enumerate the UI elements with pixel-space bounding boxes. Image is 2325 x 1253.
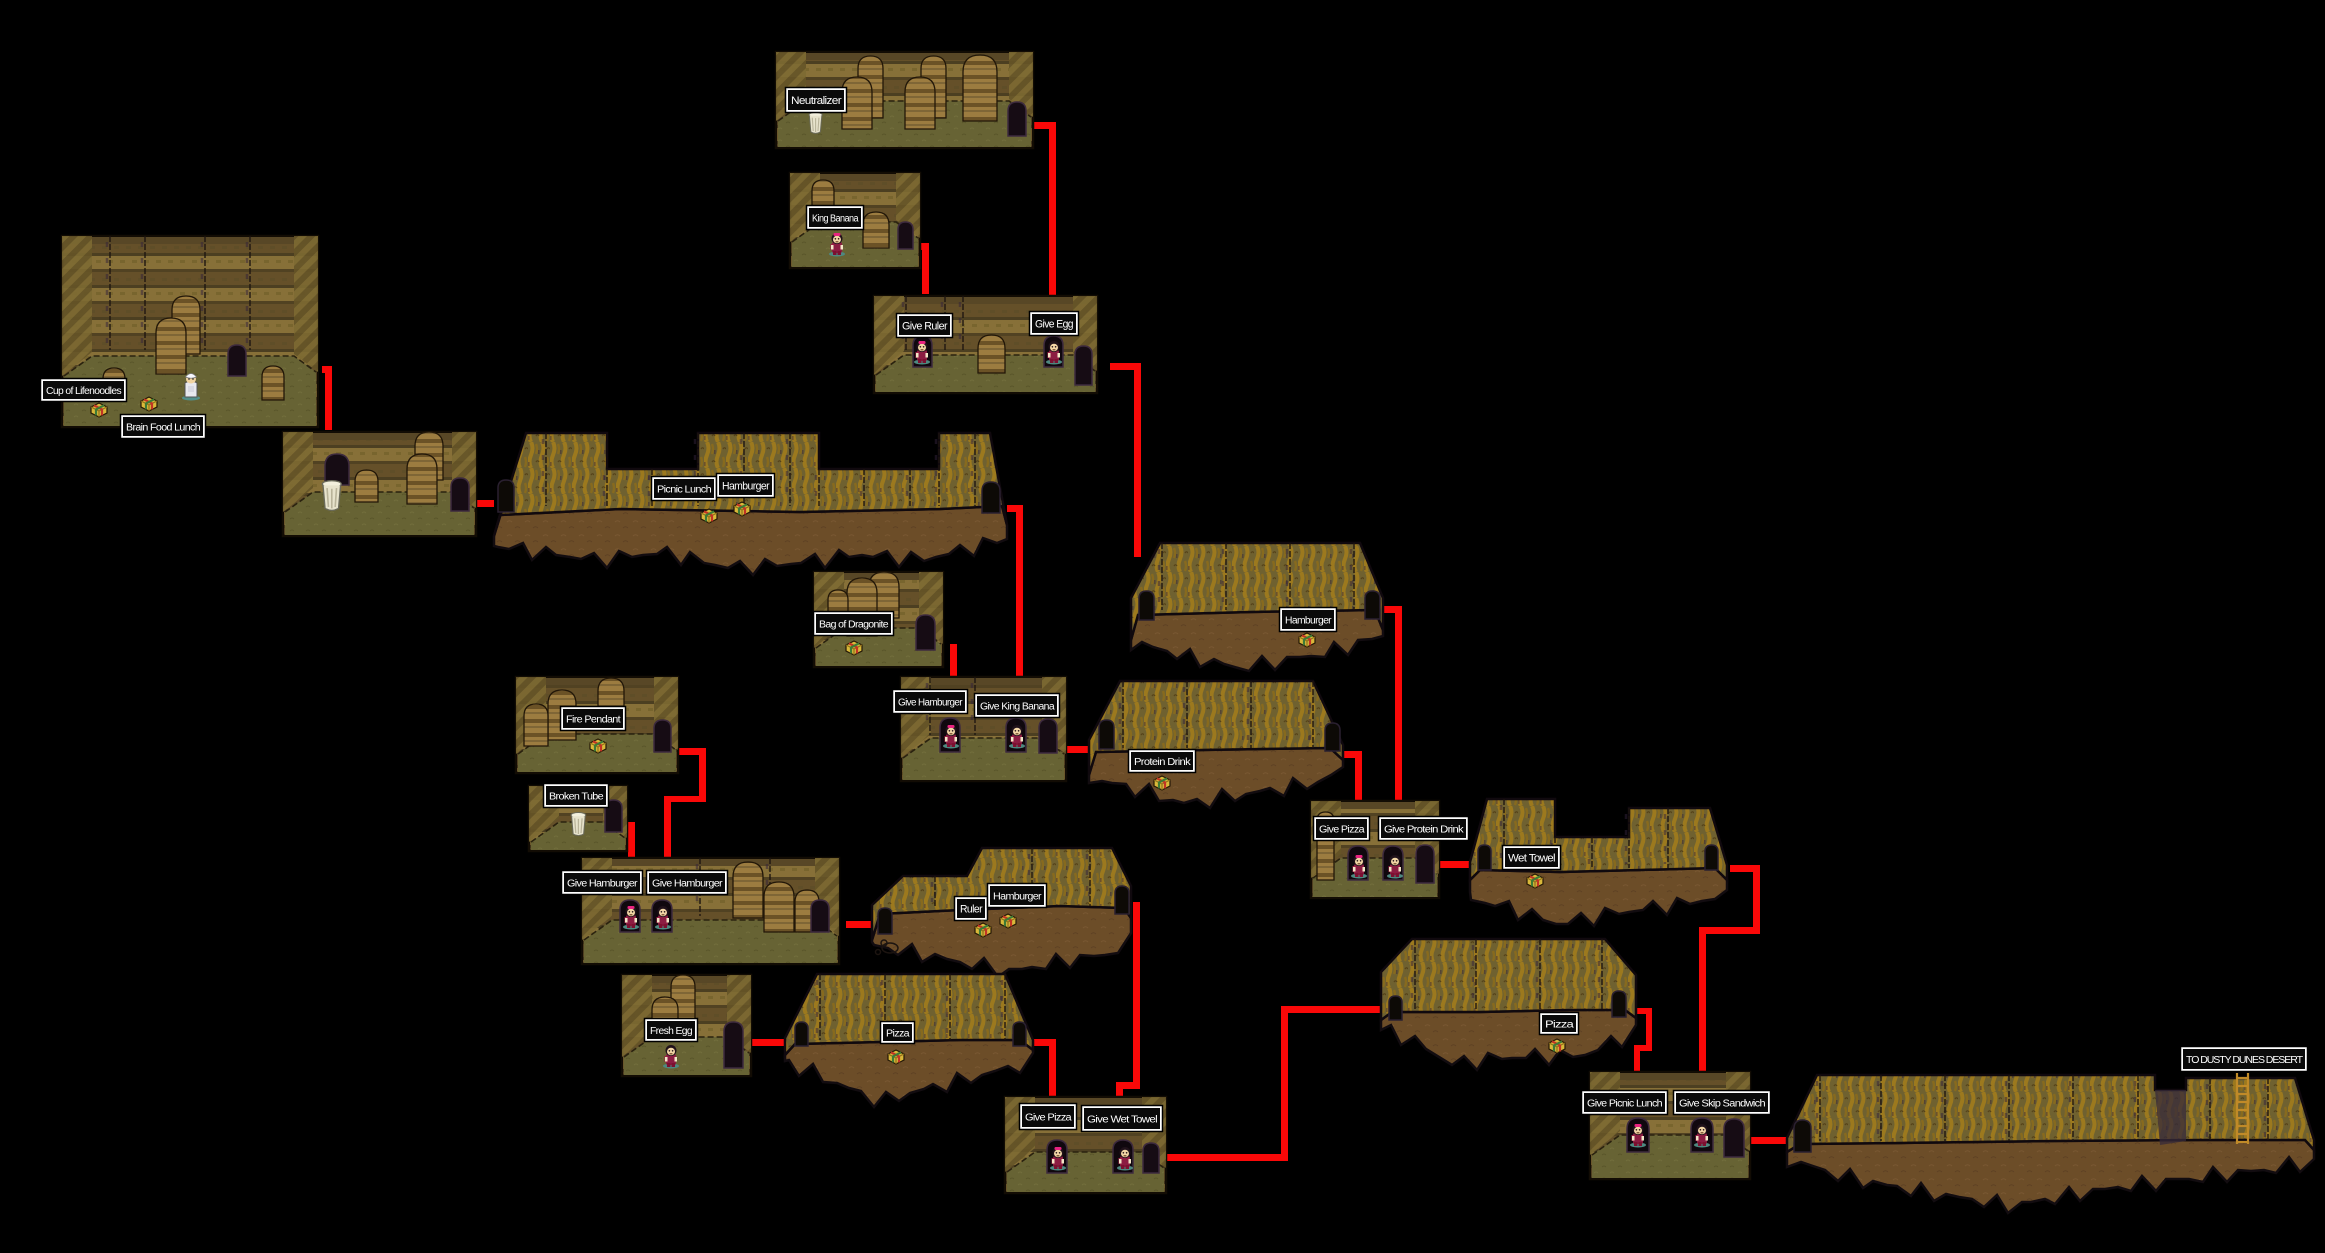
svg-text:Bag of Dragonite: Bag of Dragonite [819,619,889,630]
svg-text:Give King Banana: Give King Banana [980,701,1055,712]
svg-text:Give Ruler: Give Ruler [902,320,948,332]
svg-text:Give Pizza: Give Pizza [1025,1112,1072,1123]
svg-text:Give Skip Sandwich: Give Skip Sandwich [1679,1098,1765,1109]
svg-text:Broken Tube: Broken Tube [549,791,604,802]
svg-text:Give Hamburger: Give Hamburger [652,878,723,889]
svg-text:TO DUSTY DUNES DESERT: TO DUSTY DUNES DESERT [2186,1055,2303,1066]
svg-text:Fresh Egg: Fresh Egg [650,1026,692,1037]
svg-text:Give Protein Drink: Give Protein Drink [1384,824,1465,835]
svg-text:Give Pizza: Give Pizza [1319,824,1365,835]
svg-text:Protein Drink: Protein Drink [1134,757,1192,768]
svg-text:Give Wet Towel: Give Wet Towel [1087,1114,1157,1125]
svg-text:Cup of Lifenoodles: Cup of Lifenoodles [46,386,122,397]
svg-text:Neutralizer: Neutralizer [791,95,842,107]
svg-text:Wet Towel: Wet Towel [1508,852,1555,864]
svg-text:Brain Food Lunch: Brain Food Lunch [126,422,200,433]
svg-text:Give Hamburger: Give Hamburger [898,697,963,708]
svg-text:Pizza: Pizza [1545,1019,1574,1030]
svg-text:Fire Pendant: Fire Pendant [566,714,621,725]
svg-text:Ruler: Ruler [960,903,983,915]
svg-text:Give Picnic Lunch: Give Picnic Lunch [1587,1098,1662,1109]
svg-text:King Banana: King Banana [812,213,859,224]
svg-text:Give Egg: Give Egg [1035,318,1073,330]
svg-text:Picnic Lunch: Picnic Lunch [657,484,711,495]
svg-text:Pizza: Pizza [886,1028,910,1039]
svg-text:Give Hamburger: Give Hamburger [567,878,638,889]
svg-text:Hamburger: Hamburger [1285,615,1332,626]
svg-text:Hamburger: Hamburger [722,480,770,492]
svg-text:Hamburger: Hamburger [993,891,1042,902]
